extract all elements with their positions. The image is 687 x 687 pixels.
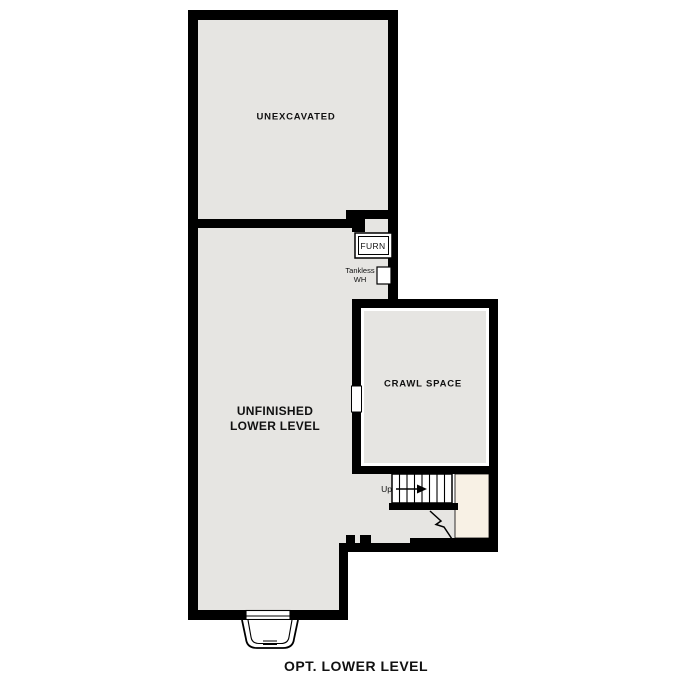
tankless-water-heater-label: Tankless WH	[345, 266, 374, 284]
wall-step-vertical	[339, 543, 348, 613]
stairs-up-label: Up	[381, 484, 392, 494]
crawl-space-vent-window	[352, 386, 362, 412]
wall-divider-jog	[346, 210, 353, 228]
egress-window	[242, 611, 298, 649]
tankless-water-heater-box	[377, 267, 391, 284]
tankless-water-heater-label-line2: WH	[345, 275, 374, 284]
wall-divider-stub	[352, 219, 365, 232]
wall-crawl-top	[352, 299, 498, 308]
floor-plan: UNEXCAVATED UNFINISHED LOWER LEVEL CRAWL…	[0, 0, 687, 687]
furnace-label: FURN	[360, 241, 385, 251]
plan-caption: OPT. LOWER LEVEL	[284, 658, 428, 674]
unexcavated-label: UNEXCAVATED	[257, 112, 336, 123]
wall-top	[188, 10, 398, 20]
wall-divider-upper	[346, 210, 398, 219]
tankless-water-heater-label-line1: Tankless	[345, 266, 374, 275]
wall-opening-tab-left	[346, 535, 355, 543]
lower-level-narrow-floor	[198, 543, 339, 613]
egress-window-frame	[246, 611, 290, 620]
unfinished-lower-level-label: UNFINISHED LOWER LEVEL	[230, 404, 320, 434]
wall-crawl-bottom	[352, 466, 498, 474]
wall-left	[188, 10, 198, 620]
wall-right-lower	[489, 299, 498, 552]
crawl-space-label: CRAWL SPACE	[384, 379, 462, 390]
unfinished-lower-level-label-line2: LOWER LEVEL	[230, 419, 320, 434]
below-landing-floor	[392, 505, 455, 543]
wall-opening-tab-right	[360, 535, 371, 543]
unfinished-lower-level-label-line1: UNFINISHED	[230, 404, 320, 419]
stair-landing-area	[455, 474, 489, 538]
stair-landing-edge	[389, 503, 458, 510]
floor-plan-drawing	[0, 0, 687, 687]
wall-divider-lower	[188, 219, 357, 228]
